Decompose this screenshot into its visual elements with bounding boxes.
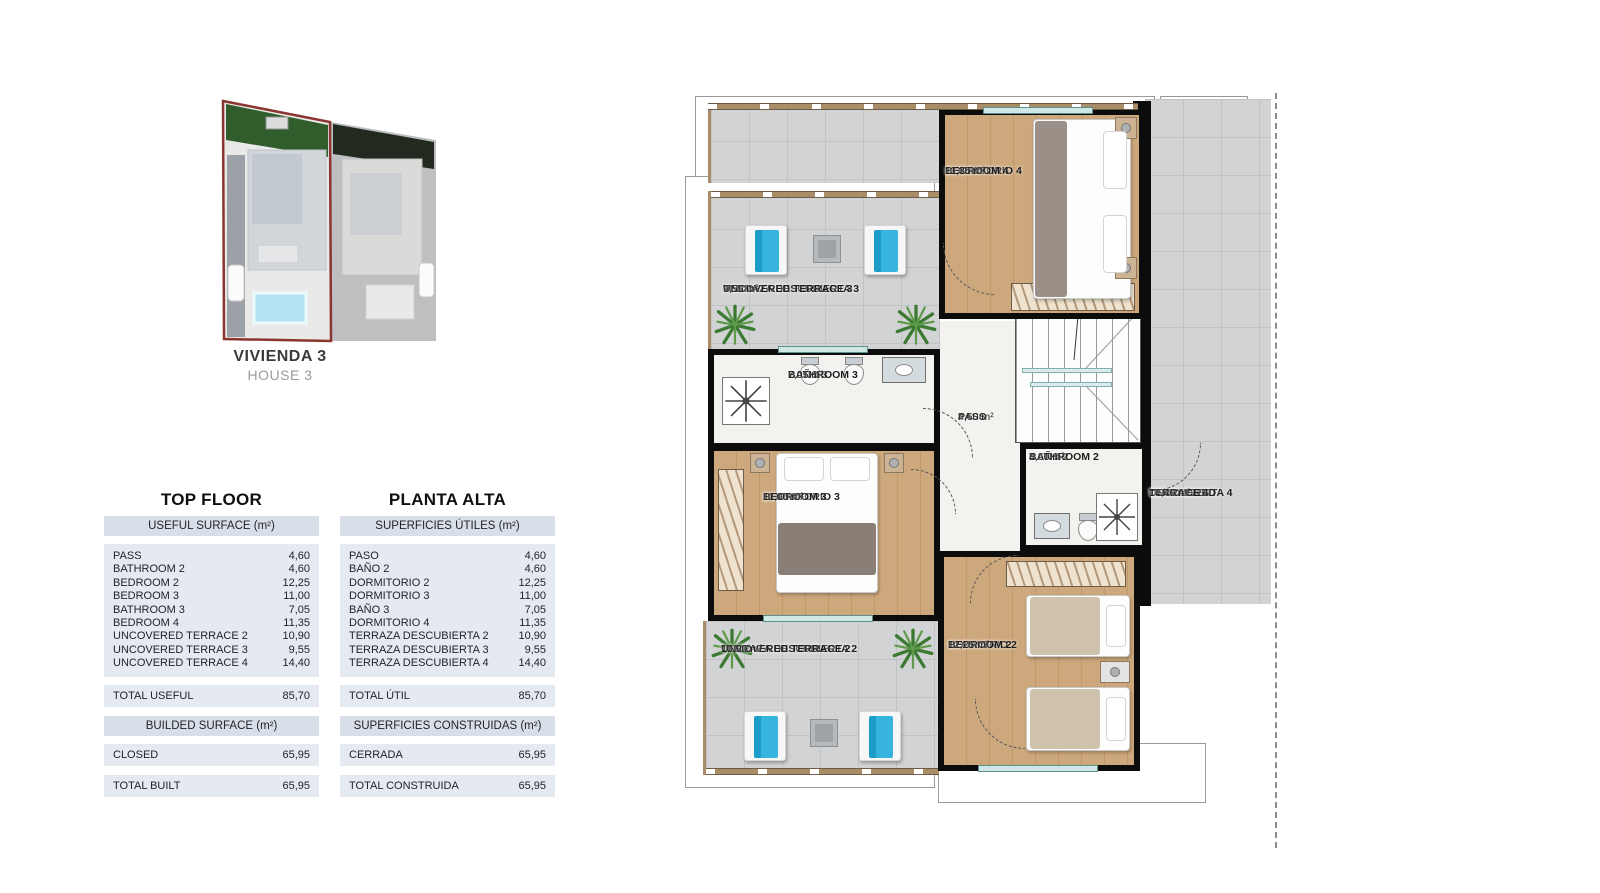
railing-terrace2 [706, 768, 939, 775]
blanket [778, 523, 876, 575]
shower [722, 377, 770, 425]
floor-plan: DORMITORIO 4 BEDROOM 4 11,35 m² [683, 93, 1283, 858]
table-rows-es: PASO 4,60 BAÑO 2 4,60 DORMITORIO 2 12,25… [340, 544, 555, 677]
table-row: TERRAZA DESCUBIERTA 4 14,40 [349, 657, 546, 670]
pool [254, 293, 306, 323]
site-plan-svg [218, 95, 440, 345]
row-label: PASO [349, 550, 379, 563]
row-value: 12,25 [518, 577, 546, 590]
table-row: BEDROOM 2 12,25 [113, 577, 310, 590]
row-label: UNCOVERED TERRACE 2 [113, 630, 248, 643]
pillow [1103, 215, 1127, 273]
shower-drain-icon [1097, 494, 1137, 540]
room-bedroom2 [938, 551, 1140, 771]
row-label: BEDROOM 3 [113, 590, 179, 603]
blanket [1035, 121, 1067, 297]
row-label: TERRAZA DESCUBIERTA 4 [349, 657, 489, 670]
table-planta-alta: PLANTA ALTA SUPERFICIES ÚTILES (m²) PASO… [340, 490, 555, 806]
railing-terrace3 [711, 191, 940, 198]
room-area: 4,60 m² [958, 411, 994, 424]
room-area: 12,25 m² [948, 639, 989, 652]
total-useful-row-es: TOTAL ÚTIL 85,70 [340, 685, 555, 707]
row-label: BAÑO 2 [349, 563, 389, 576]
villa-name-es: VIVIENDA 3 [170, 348, 390, 366]
row-value: 12,25 [282, 577, 310, 590]
row-value: 10,90 [282, 630, 310, 643]
total-label: TOTAL USEFUL [113, 690, 193, 702]
table-header-built-en: BUILDED SURFACE (m²) [104, 716, 319, 736]
total-built-row-es: TOTAL CONSTRUIDA 65,95 [340, 775, 555, 797]
row-value: 11,00 [519, 590, 546, 603]
row-label: BATHROOM 3 [113, 604, 185, 617]
total-value: 85,70 [282, 690, 310, 702]
sun-lounger [745, 225, 787, 275]
closed-value: 65,95 [518, 749, 546, 761]
table-row: UNCOVERED TERRACE 4 14,40 [113, 657, 310, 670]
row-value: 9,55 [525, 644, 546, 657]
room-area: 10,90 m² [721, 643, 762, 656]
terrace-side-table [810, 719, 838, 747]
row-value: 4,60 [525, 550, 546, 563]
total-built-label: TOTAL CONSTRUIDA [349, 780, 459, 792]
pillow [1106, 605, 1126, 647]
sun-lounger [744, 711, 786, 761]
row-value: 9,55 [289, 644, 310, 657]
room-bathroom3 [708, 349, 940, 449]
table-header-useful-es: SUPERFICIES ÚTILES (m²) [340, 516, 555, 536]
table-row: BATHROOM 3 7,05 [113, 604, 310, 617]
pillow [1103, 131, 1127, 189]
table-row: BATHROOM 2 4,60 [113, 563, 310, 576]
house-roof-texture [252, 154, 302, 224]
rear-deck [258, 245, 298, 263]
total-value: 85,70 [518, 690, 546, 702]
duvet [1030, 597, 1100, 655]
table-row: DORMITORIO 3 11,00 [349, 590, 546, 603]
neighbor-roof [350, 173, 402, 235]
duvet [1030, 689, 1100, 749]
sun-lounger [864, 225, 906, 275]
row-value: 14,40 [518, 657, 546, 670]
total-built-value: 65,95 [282, 780, 310, 792]
staircase [1015, 307, 1141, 443]
window-bedroom4 [983, 107, 1093, 114]
pillow [1106, 697, 1126, 741]
garden-table [266, 117, 288, 129]
table-row: UNCOVERED TERRACE 2 10,90 [113, 630, 310, 643]
neighbor-patio [366, 285, 414, 319]
closed-value: 65,95 [282, 749, 310, 761]
table-row: PASO 4,60 [349, 550, 546, 563]
row-label: BEDROOM 2 [113, 577, 179, 590]
window-bedroom3 [763, 615, 873, 622]
row-value: 11,35 [519, 617, 546, 630]
table-title-en: TOP FLOOR [104, 490, 319, 510]
table-row: BAÑO 3 7,05 [349, 604, 546, 617]
shower [1096, 493, 1138, 541]
pillow [784, 457, 824, 481]
wardrobe [718, 469, 744, 591]
nightstand [750, 453, 770, 473]
window-bathroom3 [778, 346, 868, 353]
row-value: 4,60 [289, 550, 310, 563]
closed-row-en: CLOSED 65,95 [104, 744, 319, 766]
row-label: BATHROOM 2 [113, 563, 185, 576]
row-label: DORMITORIO 2 [349, 577, 429, 590]
row-value: 7,05 [525, 604, 546, 617]
row-value: 11,35 [283, 617, 310, 630]
row-value: 14,40 [282, 657, 310, 670]
table-header-built-es: SUPERFICIES CONSTRUIDAS (m²) [340, 716, 555, 736]
table-row: BAÑO 2 4,60 [349, 563, 546, 576]
neighbor-car [419, 263, 434, 297]
table-row: BEDROOM 3 11,00 [113, 590, 310, 603]
row-value: 4,60 [525, 563, 546, 576]
row-label: UNCOVERED TERRACE 3 [113, 644, 248, 657]
table-top-floor: TOP FLOOR USEFUL SURFACE (m²) PASS 4,60 … [104, 490, 319, 806]
toilet [1078, 513, 1098, 541]
room-area: 9,55 m² [723, 283, 759, 296]
table-title-es: PLANTA ALTA [340, 490, 555, 510]
villa-name-en: HOUSE 3 [170, 367, 390, 383]
row-value: 10,90 [518, 630, 546, 643]
room-area: 7,05 m² [788, 369, 824, 382]
table-row: BEDROOM 4 11,35 [113, 617, 310, 630]
plant-icon [713, 303, 757, 347]
room-terrace4 [1145, 99, 1271, 604]
plant-icon [894, 303, 938, 347]
driveway [227, 155, 245, 337]
stair-winder-lines [1016, 308, 1142, 444]
table-row: TERRAZA DESCUBIERTA 3 9,55 [349, 644, 546, 657]
row-value: 11,00 [283, 590, 310, 603]
closed-label: CLOSED [113, 749, 158, 761]
row-label: UNCOVERED TERRACE 4 [113, 657, 248, 670]
row-label: TERRAZA DESCUBIERTA 2 [349, 630, 489, 643]
table-rows-en: PASS 4,60 BATHROOM 2 4,60 BEDROOM 2 12,2… [104, 544, 319, 677]
nightstand [884, 453, 904, 473]
row-label: TERRAZA DESCUBIERTA 3 [349, 644, 489, 657]
villa-caption: VIVIENDA 3 HOUSE 3 [170, 348, 390, 383]
room-bedroom3 [708, 445, 940, 621]
total-label: TOTAL ÚTIL [349, 690, 410, 702]
pillow [830, 457, 870, 481]
total-built-row-en: TOTAL BUILT 65,95 [104, 775, 319, 797]
total-useful-row-en: TOTAL USEFUL 85,70 [104, 685, 319, 707]
shower-drain-icon [723, 378, 769, 424]
row-label: PASS [113, 550, 142, 563]
table-row: UNCOVERED TERRACE 3 9,55 [113, 644, 310, 657]
washbasin [882, 357, 926, 383]
car [228, 265, 244, 301]
terrace-side-table [813, 235, 841, 263]
closed-label: CERRADA [349, 749, 403, 761]
window-bedroom2 [978, 765, 1098, 772]
table-row: TERRAZA DESCUBIERTA 2 10,90 [349, 630, 546, 643]
nightstand [1100, 661, 1130, 683]
room-area: 11,00 m² [763, 491, 804, 504]
row-value: 4,60 [289, 563, 310, 576]
plot-boundary-line [1275, 93, 1277, 848]
top-terrace-strip [708, 103, 953, 183]
row-label: DORMITORIO 4 [349, 617, 429, 630]
table-header-useful-en: USEFUL SURFACE (m²) [104, 516, 319, 536]
room-terrace3 [708, 191, 940, 349]
total-built-label: TOTAL BUILT [113, 780, 180, 792]
closed-row-es: CERRADA 65,95 [340, 744, 555, 766]
row-label: BAÑO 3 [349, 604, 389, 617]
site-plan-thumbnail [218, 95, 440, 345]
wardrobe [1006, 561, 1126, 587]
table-row: DORMITORIO 4 11,35 [349, 617, 546, 630]
row-value: 7,05 [289, 604, 310, 617]
table-row: PASS 4,60 [113, 550, 310, 563]
brochure-page: VIVIENDA 3 HOUSE 3 TOP FLOOR USEFUL SURF… [0, 0, 1600, 893]
total-built-value: 65,95 [518, 780, 546, 792]
table-row: DORMITORIO 2 12,25 [349, 577, 546, 590]
room-area: 11,35 m² [945, 165, 986, 178]
sun-lounger [859, 711, 901, 761]
washbasin [1034, 513, 1070, 539]
plant-icon [891, 627, 935, 671]
row-label: DORMITORIO 3 [349, 590, 429, 603]
room-area: 4,60 m² [1029, 451, 1065, 464]
row-label: BEDROOM 4 [113, 617, 179, 630]
